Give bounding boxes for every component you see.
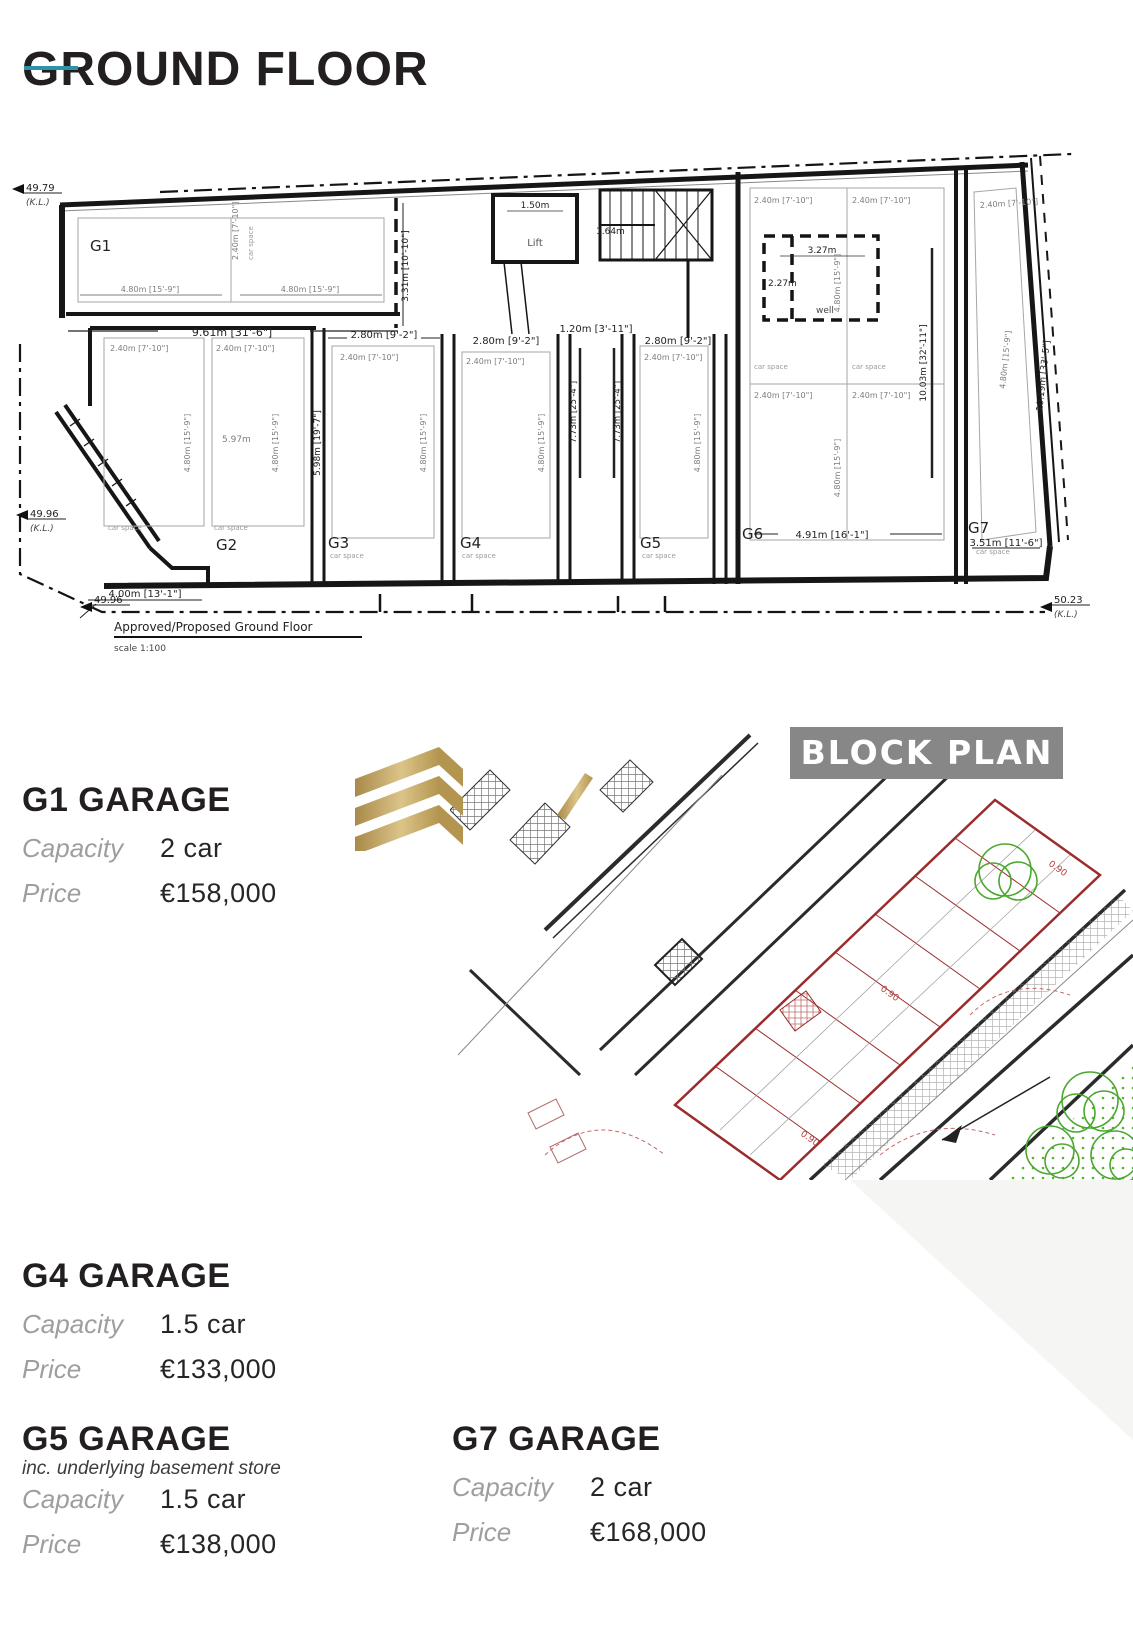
room-label-lift: Lift	[527, 238, 543, 249]
dim-label: 2.40m [7'-10"]	[216, 344, 274, 353]
room-label-g7: G7	[968, 519, 989, 537]
car-space-label: car space	[462, 552, 496, 560]
dim-label: 1.50m	[521, 201, 550, 211]
price-value: €133,000	[160, 1354, 277, 1385]
dim-label: 4.91m [16'-1"]	[795, 530, 868, 541]
listing-g7: G7 GARAGE Capacity 2 car Price €168,000	[452, 1421, 872, 1548]
dim-label: 2.40m [7'-10"]	[110, 344, 168, 353]
price-label: Price	[22, 878, 160, 909]
capacity-value: 2 car	[590, 1472, 653, 1503]
price-label: Price	[22, 1354, 160, 1385]
dim-label: 7.73m [25'-4"]	[569, 381, 579, 443]
dim-label: 1.20m [3'-11"]	[559, 324, 632, 335]
level-kl: (K.L.)	[1054, 610, 1078, 620]
dim-label: 4.80m [15'-9"]	[121, 285, 179, 294]
room-label-g6: G6	[742, 525, 763, 543]
dim-label: 7.73m [25'-4"]	[613, 381, 623, 443]
dim-label: 9.61m [31'-6"]	[192, 326, 272, 339]
capacity-value: 1.5 car	[160, 1484, 246, 1515]
room-label-g5: G5	[640, 534, 661, 552]
dim-label: 2.80m [9'-2"]	[645, 336, 712, 347]
capacity-label: Capacity	[452, 1472, 590, 1503]
dim-label: 1.64m	[596, 227, 625, 237]
price-value: €138,000	[160, 1529, 277, 1560]
dim-label: 3.27m	[808, 246, 837, 256]
dim-label: 4.80m [15'-9"]	[998, 330, 1013, 389]
dim-label: 4.80m [15'-9"]	[419, 414, 428, 472]
price-label: Price	[452, 1517, 590, 1548]
dim-label: 4.80m [15'-9"]	[183, 414, 192, 472]
car-space-label: car space	[976, 548, 1010, 556]
page-title: GROUND FLOOR	[22, 42, 429, 97]
listing-note: inc. underlying basement store	[22, 1459, 442, 1479]
capacity-value: 1.5 car	[160, 1309, 246, 1340]
dim-label: 3.51m [11'-6"]	[969, 538, 1042, 549]
dim-label: 2.40m [7'-10"]	[852, 391, 910, 400]
dim-label: 5.97m	[222, 435, 251, 445]
dim-label: 2.27m	[768, 279, 797, 289]
brochure-page: GROUND FLOOR	[0, 0, 1133, 1640]
room-label-well: well	[816, 306, 834, 316]
plan-caption: Approved/Proposed Ground Floor scale 1:1…	[114, 620, 362, 654]
title-accent-underline	[24, 66, 78, 70]
dim-label: 2.80m [9'-2"]	[473, 336, 540, 347]
level-value: 49.96	[30, 509, 59, 520]
car-space-label: car space	[642, 552, 676, 560]
level-kl: (K.L.)	[26, 198, 50, 208]
price-value: €158,000	[160, 878, 277, 909]
dim-label: 2.40m [7'-10"]	[340, 353, 398, 362]
room-label-g2: G2	[216, 536, 237, 554]
room-label-g4: G4	[460, 534, 481, 552]
dim-label: 2.80m [9'-2"]	[351, 330, 418, 341]
price-label: Price	[22, 1529, 160, 1560]
price-value: €168,000	[590, 1517, 707, 1548]
block-plan-banner-label: BLOCK PLAN	[801, 733, 1054, 772]
staircase	[600, 190, 712, 260]
background-watermark	[740, 1180, 1133, 1440]
dim-label: 4.80m [15'-9"]	[271, 414, 280, 472]
car-space-label: car space	[330, 552, 364, 560]
plan-caption-text: Approved/Proposed Ground Floor	[114, 620, 313, 634]
room-label-g1: G1	[90, 237, 111, 255]
dim-label: 10.03m [32'-11"]	[919, 324, 929, 401]
level-value: 50.23	[1054, 595, 1083, 606]
dim-label: 5.98m [19'-7"]	[313, 410, 323, 476]
capacity-label: Capacity	[22, 1484, 160, 1515]
dim-label: 2.40m [7'-10"]	[466, 357, 524, 366]
listing-title: G5 GARAGE	[22, 1421, 442, 1458]
logo-accent-stroke	[557, 773, 593, 820]
dim-label: 2.40m [7'-10"]	[644, 353, 702, 362]
capacity-label: Capacity	[22, 1309, 160, 1340]
room-label-g3: G3	[328, 534, 349, 552]
listing-g4: G4 GARAGE Capacity 1.5 car Price €133,00…	[22, 1258, 442, 1385]
dim-label: 2.40m [7'-10"]	[754, 391, 812, 400]
dim-label: 2.40m [7'-10"]	[852, 196, 910, 205]
ground-floor-plan-drawing: G1 G2 G3 G4 G5 G6 G7 Lift well car space…	[10, 148, 1123, 663]
car-space-label: car space	[247, 226, 255, 260]
level-kl: (K.L.)	[30, 524, 54, 534]
plan-scale-text: scale 1:100	[114, 644, 166, 654]
car-space-label: car space	[214, 524, 248, 532]
dim-label: 4.80m [15'-9"]	[693, 414, 702, 472]
dim-label: 4.80m [15'-9"]	[833, 439, 842, 497]
listing-title: G7 GARAGE	[452, 1421, 872, 1458]
dim-label: 2.40m [7'-10"]	[231, 202, 240, 260]
dimension-lines	[68, 203, 1040, 618]
listing-g5: G5 GARAGE inc. underlying basement store…	[22, 1421, 442, 1560]
listing-g1: G1 GARAGE Capacity 2 car Price €158,000	[22, 782, 442, 909]
plan-walls	[56, 156, 1068, 586]
level-value: 49.79	[26, 183, 55, 194]
block-plan-banner: BLOCK PLAN	[790, 727, 1063, 779]
car-space-label: car space	[108, 524, 142, 532]
listing-title: G4 GARAGE	[22, 1258, 442, 1295]
car-space-label: car space	[754, 363, 788, 371]
car-space-label: car space	[852, 363, 886, 371]
dim-label: 3.31m [10'-10"]	[401, 230, 411, 301]
capacity-value: 2 car	[160, 833, 223, 864]
dim-label: 2.40m [7'-10"]	[754, 196, 812, 205]
dim-label: 4.80m [15'-9"]	[833, 254, 842, 312]
dim-label: 4.80m [15'-9"]	[281, 285, 339, 294]
listing-title: G1 GARAGE	[22, 782, 442, 819]
dim-label: 2.40m [7'-10"]	[980, 197, 1039, 210]
dim-label: 4.80m [15'-9"]	[537, 414, 546, 472]
capacity-label: Capacity	[22, 833, 160, 864]
level-value: 49.96	[94, 595, 123, 606]
